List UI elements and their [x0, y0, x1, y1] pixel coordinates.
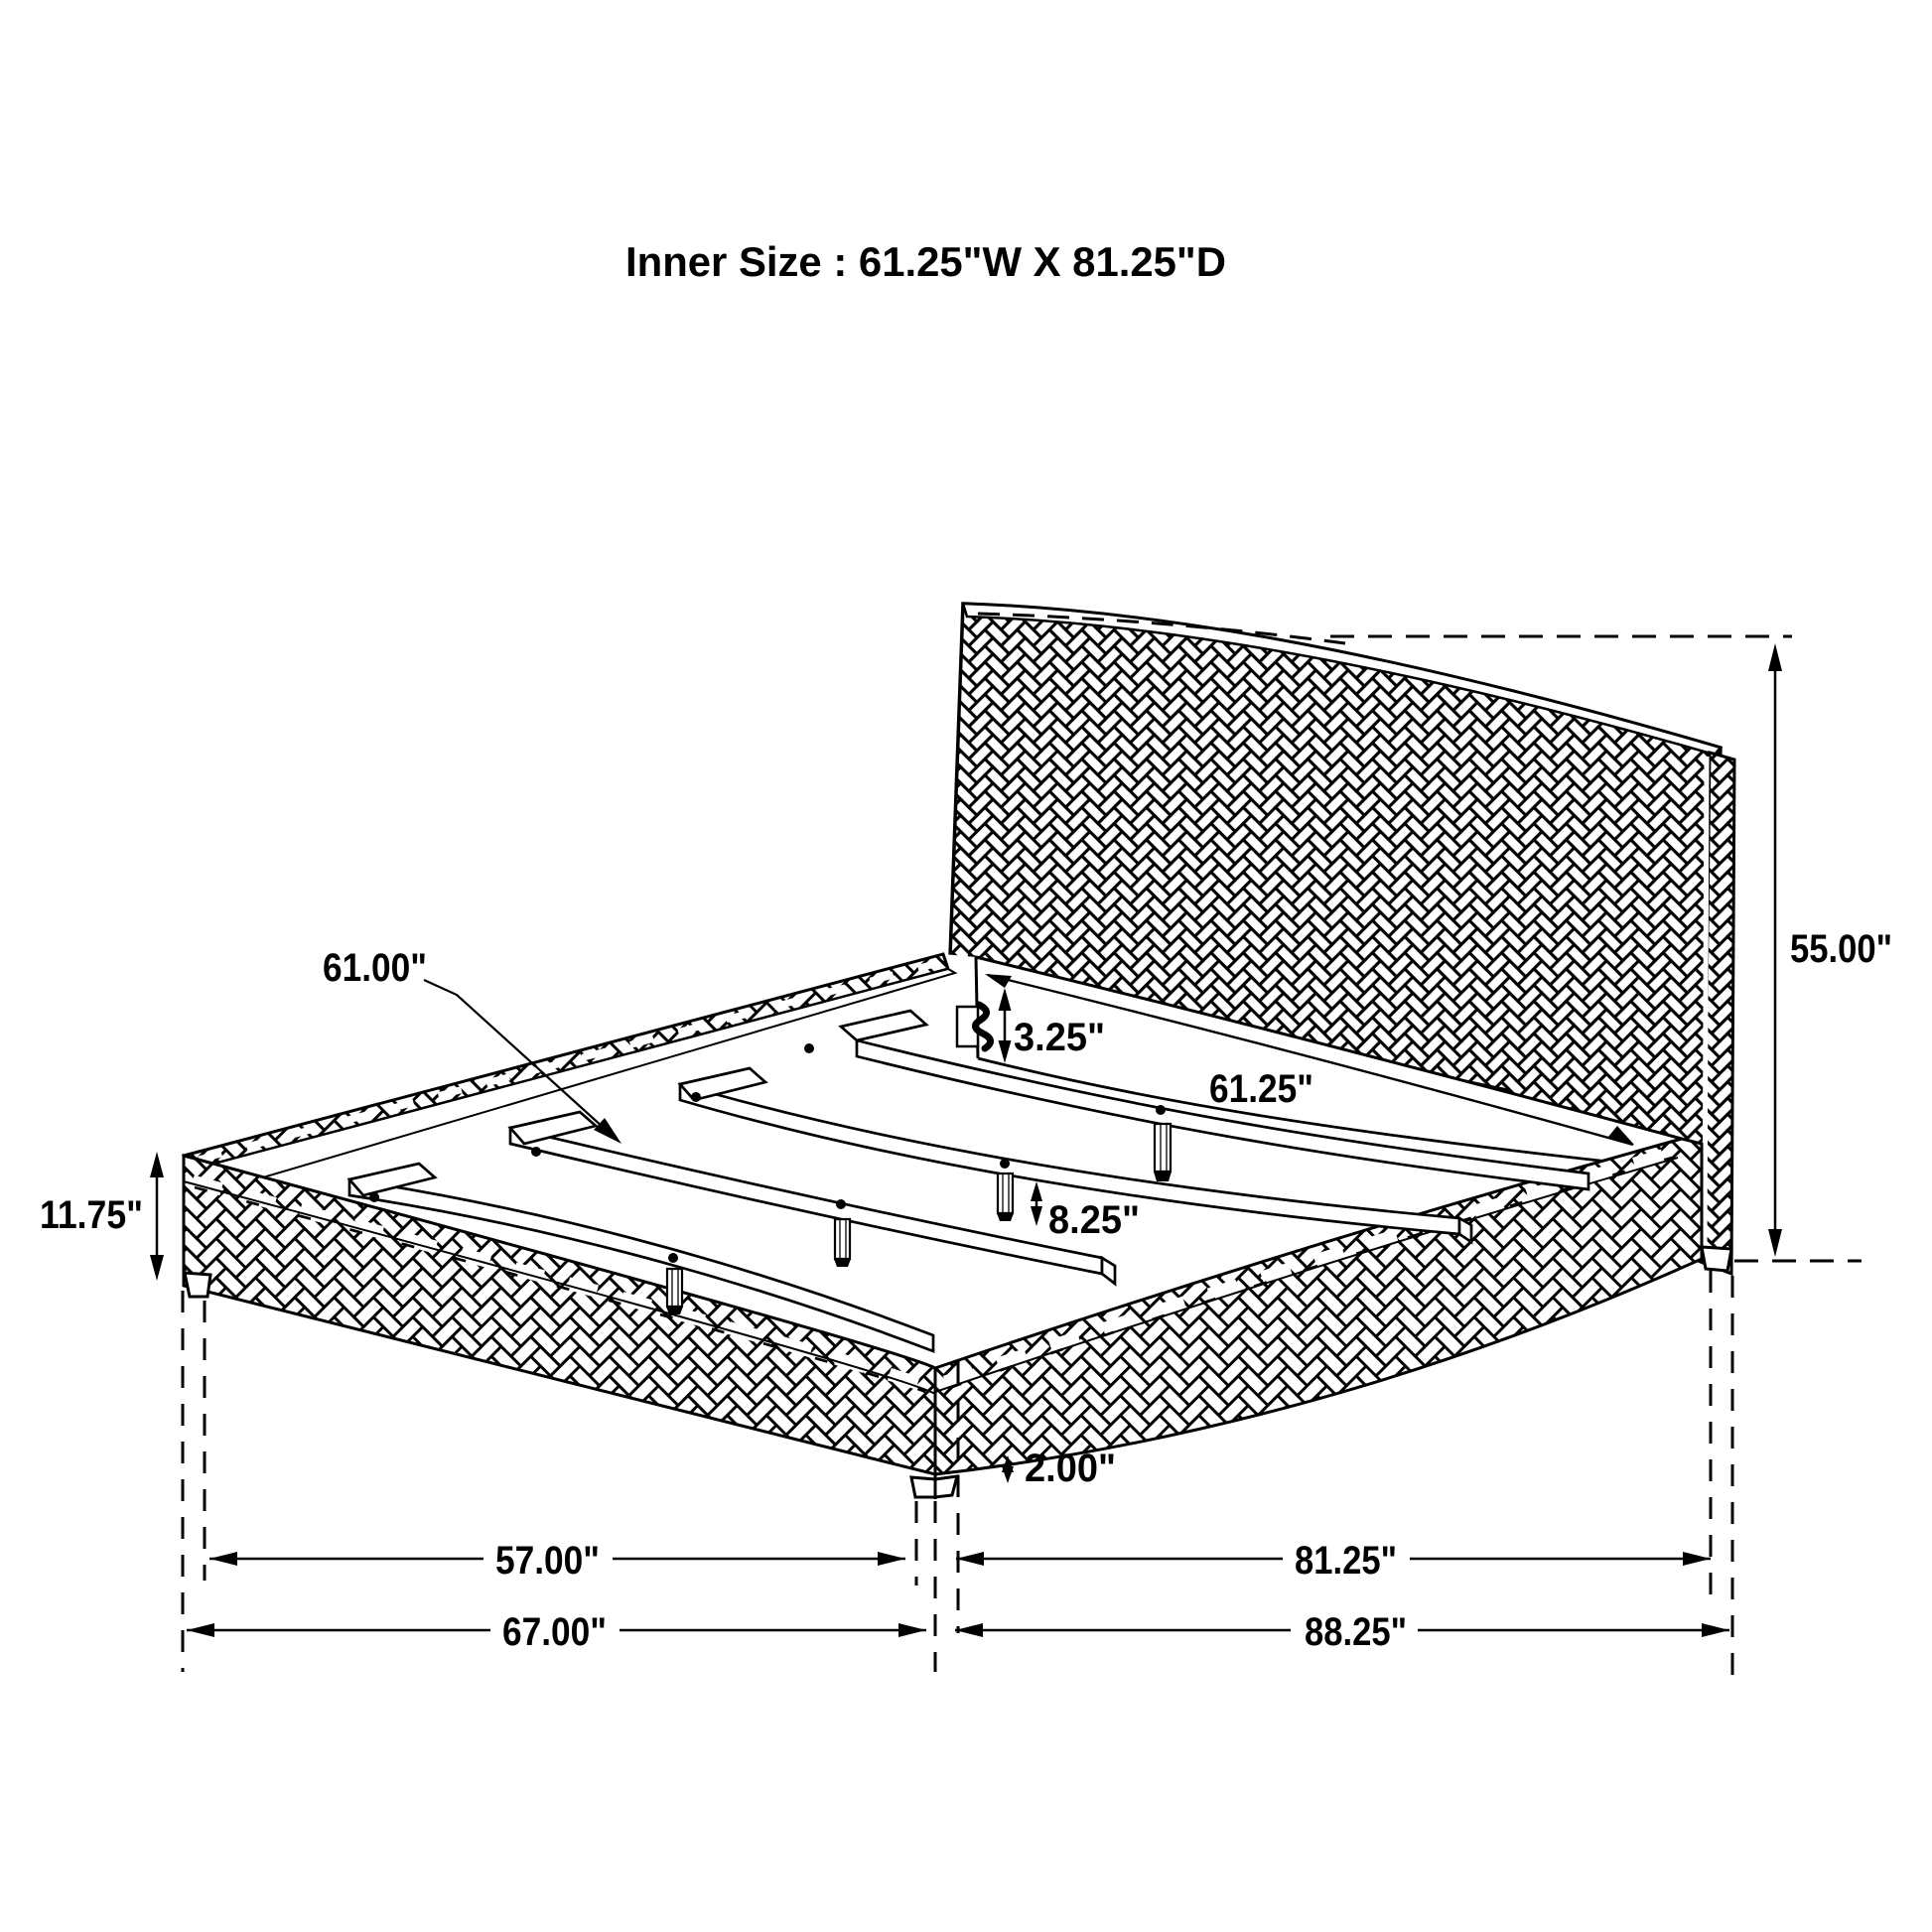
svg-text:81.25": 81.25" [1295, 1539, 1397, 1583]
svg-text:2.00": 2.00" [1025, 1447, 1116, 1490]
svg-text:55.00": 55.00" [1790, 927, 1892, 971]
svg-text:57.00": 57.00" [495, 1539, 600, 1583]
svg-text:67.00": 67.00" [502, 1610, 607, 1654]
svg-text:61.25": 61.25" [1209, 1067, 1313, 1111]
svg-text:61.00": 61.00" [323, 946, 427, 990]
svg-text:Inner Size : 61.25"W X 81.25"D: Inner Size : 61.25"W X 81.25"D [625, 238, 1226, 285]
svg-text:8.25": 8.25" [1048, 1198, 1140, 1242]
svg-text:3.25": 3.25" [1014, 1016, 1105, 1059]
svg-text:11.75": 11.75" [40, 1193, 143, 1237]
svg-text:88.25": 88.25" [1305, 1610, 1407, 1654]
